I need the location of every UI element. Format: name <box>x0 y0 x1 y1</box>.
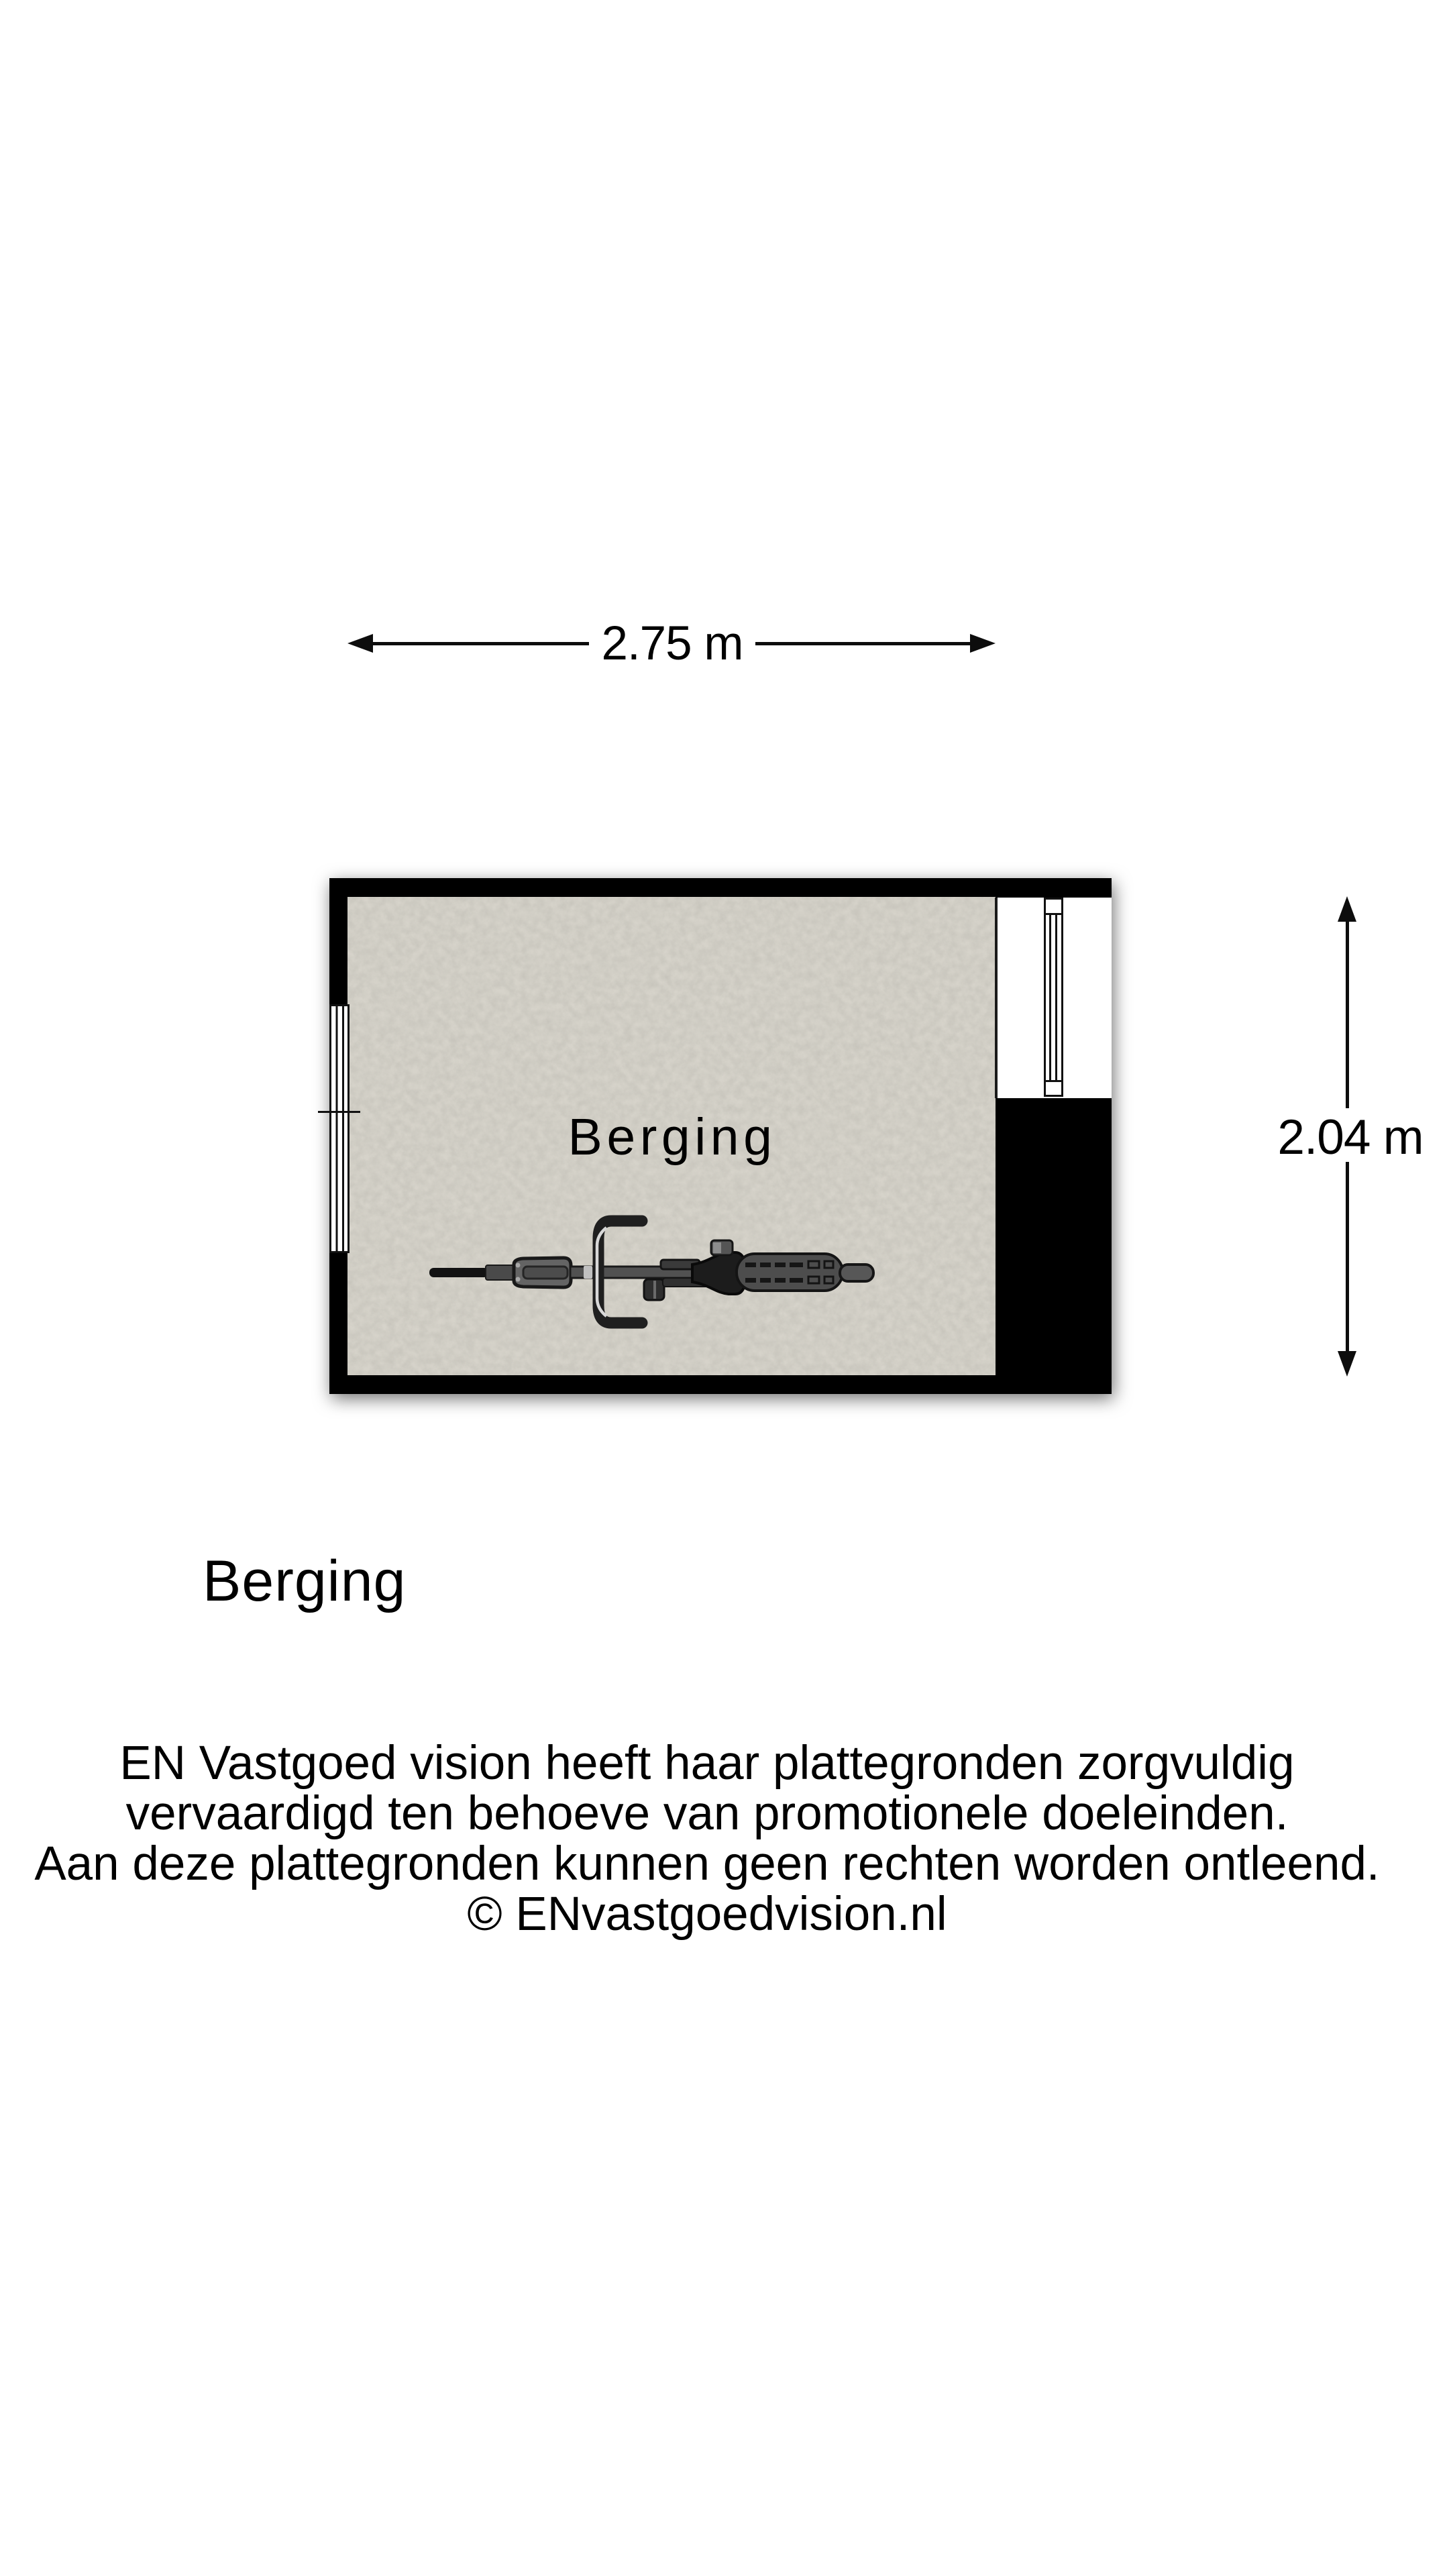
svg-text:EN Vastgoed vision heeft haar: EN Vastgoed vision heeft haar plattegron… <box>119 1737 1294 1790</box>
svg-text:© ENvastgoedvision.nl: © ENvastgoedvision.nl <box>467 1888 947 1941</box>
svg-text:2.04 m: 2.04 m <box>1277 1110 1423 1165</box>
svg-text:Berging: Berging <box>568 1108 777 1166</box>
svg-text:vervaardigd ten behoeve van pr: vervaardigd ten behoeve van promotionele… <box>126 1787 1289 1840</box>
svg-text:Berging: Berging <box>203 1549 406 1613</box>
svg-text:2.75 m: 2.75 m <box>601 617 743 670</box>
svg-text:Aan deze plattegronden kunnen: Aan deze plattegronden kunnen geen recht… <box>34 1837 1379 1890</box>
